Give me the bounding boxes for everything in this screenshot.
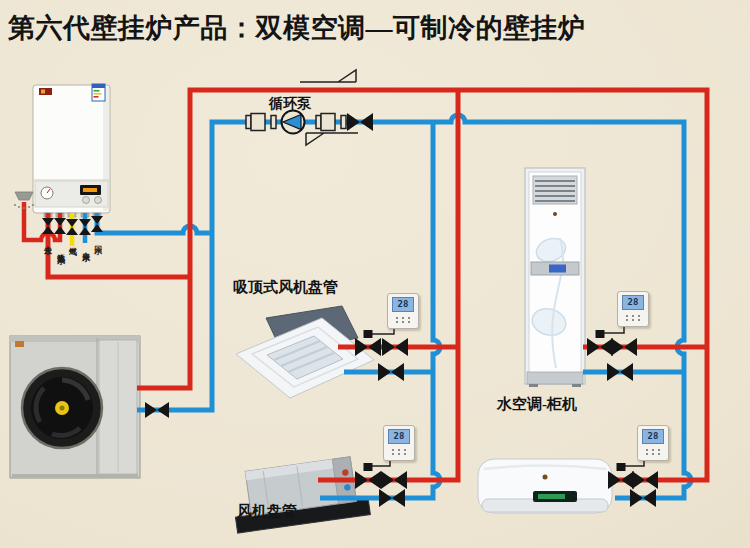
valve-icon xyxy=(632,471,658,489)
cabinet-foot xyxy=(529,384,538,387)
wall-ac-logo xyxy=(543,475,548,480)
valve-icon xyxy=(54,218,66,234)
port-label-return: 回水 xyxy=(92,239,102,241)
valve-actuator-icon xyxy=(617,463,626,471)
pump-group xyxy=(246,111,346,134)
thermostat-buttons xyxy=(393,315,413,323)
energy-label-sticker xyxy=(92,84,105,101)
valve-icon xyxy=(347,113,373,131)
cassette-label: 吸顶式风机盘管 xyxy=(233,278,338,297)
flow-arrow-left-icon xyxy=(306,133,358,145)
cabinet-logo xyxy=(553,212,557,216)
cabinet-foot xyxy=(572,384,581,387)
wall-thermostat: 28 xyxy=(637,425,669,461)
cassette-unit xyxy=(236,306,374,398)
fancoil-label: 风机盘管 xyxy=(237,502,297,521)
valve-icon xyxy=(145,402,169,418)
heat-pump-unit xyxy=(10,336,140,478)
port-label-tapwater: 自来水 xyxy=(80,245,90,248)
valve-icon xyxy=(607,363,633,381)
boiler-unit xyxy=(33,84,110,217)
thermostat-buttons xyxy=(643,447,663,455)
valve-actuator-icon xyxy=(364,463,373,471)
port-label-supply: 去水 xyxy=(42,239,52,241)
fan-hub-center xyxy=(60,406,65,411)
valve-actuator-icon xyxy=(596,330,605,338)
diagram-stage: 第六代壁挂炉产品：双模空调—可制冷的壁挂炉 循环泵 吸顶式风机盘管 风机盘管 水… xyxy=(0,0,750,548)
boiler-logo xyxy=(39,88,52,95)
valve-icon xyxy=(66,219,78,235)
thermostat-buttons xyxy=(623,313,643,321)
wall-ac-display-digits xyxy=(538,494,565,499)
fancoil-unit xyxy=(229,455,370,533)
heat-pump-logo xyxy=(15,341,24,347)
motorized-valve-icon xyxy=(355,471,381,489)
thermostat-buttons xyxy=(389,447,409,455)
boiler-return-pipe xyxy=(97,213,212,233)
valve-icon xyxy=(42,218,54,234)
pump-label: 循环泵 xyxy=(269,95,311,113)
cabinet-louver xyxy=(533,176,577,204)
pipe-flange xyxy=(316,114,346,131)
valve-icon xyxy=(91,216,103,232)
thermostat-screen: 28 xyxy=(388,429,410,444)
diagram-canvas xyxy=(0,0,750,548)
thermostat-screen: 28 xyxy=(392,297,414,312)
page-title: 第六代壁挂炉产品：双模空调—可制冷的壁挂炉 xyxy=(8,10,586,46)
red-middle-riser xyxy=(318,90,458,480)
heat-pump-base xyxy=(12,474,138,478)
pipe-flange xyxy=(246,114,276,131)
boiler-display-digits xyxy=(83,188,97,192)
boiler-knob xyxy=(83,197,90,204)
cabinet-base xyxy=(527,372,583,384)
boiler-logo-accent xyxy=(41,90,45,94)
valve-icon xyxy=(630,489,656,507)
cabinet-unit xyxy=(525,168,585,387)
motorized-valve-icon xyxy=(587,338,613,356)
port-label-gas: 燃气 xyxy=(67,241,77,243)
thermostat-screen: 28 xyxy=(642,429,664,444)
valve-actuator-icon xyxy=(364,330,373,338)
valve-icon xyxy=(381,471,407,489)
boiler-knob xyxy=(95,197,102,204)
wall-ac-unit xyxy=(478,459,612,513)
flow-arrow-right-icon xyxy=(300,70,356,82)
cabinet-display-screen xyxy=(549,265,566,273)
cassette-thermostat: 28 xyxy=(387,293,419,329)
valve-icon xyxy=(378,363,404,381)
thermostat-screen: 28 xyxy=(622,295,644,310)
valve-icon xyxy=(611,338,637,356)
fancoil-thermostat: 28 xyxy=(383,425,415,461)
valve-icon xyxy=(79,219,91,235)
valve-icon xyxy=(382,338,408,356)
red-main-pipe xyxy=(137,90,707,480)
valve-icon xyxy=(379,489,405,507)
motorized-valve-icon xyxy=(355,338,381,356)
port-label-dhw: 生活热水 xyxy=(55,247,65,251)
cabinet-thermostat: 28 xyxy=(617,291,649,327)
cabinet-label: 水空调-柜机 xyxy=(497,395,577,414)
